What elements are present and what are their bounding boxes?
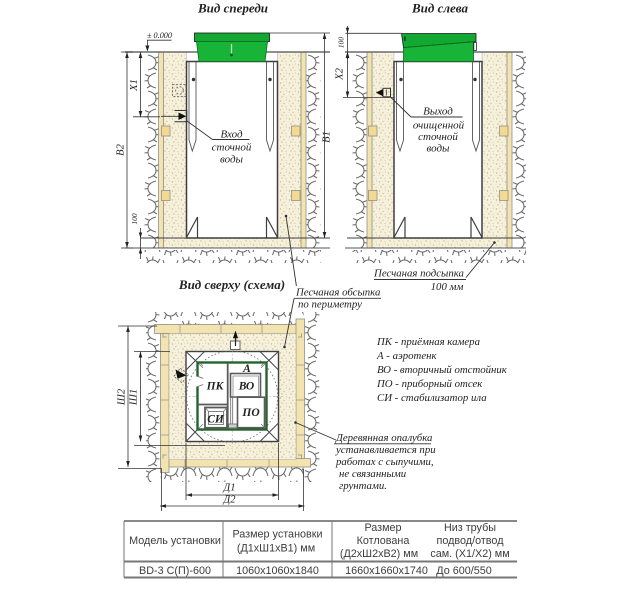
svg-text:ПК - приёмная камера: ПК - приёмная камера [376, 336, 480, 348]
svg-text:работах с сыпучими,: работах с сыпучими, [335, 456, 434, 468]
svg-text:грунтами.: грунтами. [339, 480, 387, 492]
svg-text:ПО - приборный отсек: ПО - приборный отсек [376, 378, 483, 390]
svg-text:устанавливается при: устанавливается при [335, 444, 436, 456]
svg-text:Вид спереди: Вид спереди [197, 1, 268, 16]
svg-text:100: 100 [337, 37, 346, 49]
svg-text:Ш1: Ш1 [129, 389, 140, 406]
svg-text:Ш2: Ш2 [117, 388, 128, 406]
svg-text:BD-3 С(П)-600: BD-3 С(П)-600 [139, 565, 211, 577]
svg-text:Д1: Д1 [223, 483, 236, 494]
svg-text:СИ - стабилизатор ила: СИ - стабилизатор ила [377, 392, 487, 404]
svg-text:по периметру: по периметру [298, 299, 362, 311]
svg-text:ПК: ПК [206, 381, 225, 393]
svg-text:± 0.000: ± 0.000 [147, 31, 172, 40]
svg-text:В2: В2 [116, 143, 127, 155]
svg-text:Вид слева: Вид слева [411, 1, 469, 16]
svg-text:(Д2хШ2хВ2) мм: (Д2хШ2хВ2) мм [340, 548, 418, 560]
svg-text:воды: воды [220, 154, 244, 166]
svg-text:Котлована: Котлована [357, 535, 410, 547]
svg-text:очищенной: очищенной [413, 120, 465, 132]
svg-text:Размер: Размер [364, 522, 401, 534]
svg-text:1060х1060х1840: 1060х1060х1840 [236, 565, 319, 577]
svg-text:сточной: сточной [212, 142, 252, 154]
svg-text:сточной: сточной [418, 131, 458, 143]
svg-text:Песчаная обсыпка: Песчаная обсыпка [295, 287, 380, 299]
svg-text:Песчаная подсыпка: Песчаная подсыпка [373, 268, 464, 280]
svg-text:Д2: Д2 [223, 495, 237, 506]
svg-text:X1: X1 [129, 79, 140, 92]
svg-text:100: 100 [130, 213, 139, 225]
svg-text:(Д1хШ1хВ1) мм: (Д1хШ1хВ1) мм [237, 543, 315, 555]
svg-text:ВО: ВО [238, 381, 254, 393]
svg-text:воды: воды [427, 143, 451, 155]
svg-text:ВО - вторичный отстойник: ВО - вторичный отстойник [377, 364, 508, 376]
svg-text:100 мм: 100 мм [431, 281, 464, 293]
svg-text:До 600/550: До 600/550 [436, 565, 491, 577]
svg-text:Размер установки: Размер установки [232, 529, 322, 541]
svg-text:А: А [242, 363, 251, 375]
svg-text:не связанными: не связанными [339, 468, 407, 480]
svg-text:подвод/отвод: подвод/отвод [437, 535, 505, 547]
svg-text:Вход: Вход [220, 129, 243, 141]
svg-text:Модель установки: Модель установки [129, 535, 221, 547]
svg-text:X2: X2 [335, 67, 346, 80]
svg-text:В1: В1 [322, 131, 333, 143]
svg-text:Выход: Выход [423, 106, 453, 118]
svg-text:ПО: ПО [241, 407, 259, 419]
svg-text:Низ трубы: Низ трубы [444, 522, 496, 534]
svg-text:Вид сверху (схема): Вид сверху (схема) [178, 277, 285, 292]
svg-text:1660х1660х1740: 1660х1660х1740 [345, 565, 428, 577]
svg-text:СИ: СИ [207, 414, 225, 426]
svg-text:А - аэротенк: А - аэротенк [376, 350, 437, 362]
svg-text:Деревянная опалубка: Деревянная опалубка [335, 432, 432, 444]
svg-text:сам. (Х1/Х2) мм: сам. (Х1/Х2) мм [430, 548, 509, 560]
